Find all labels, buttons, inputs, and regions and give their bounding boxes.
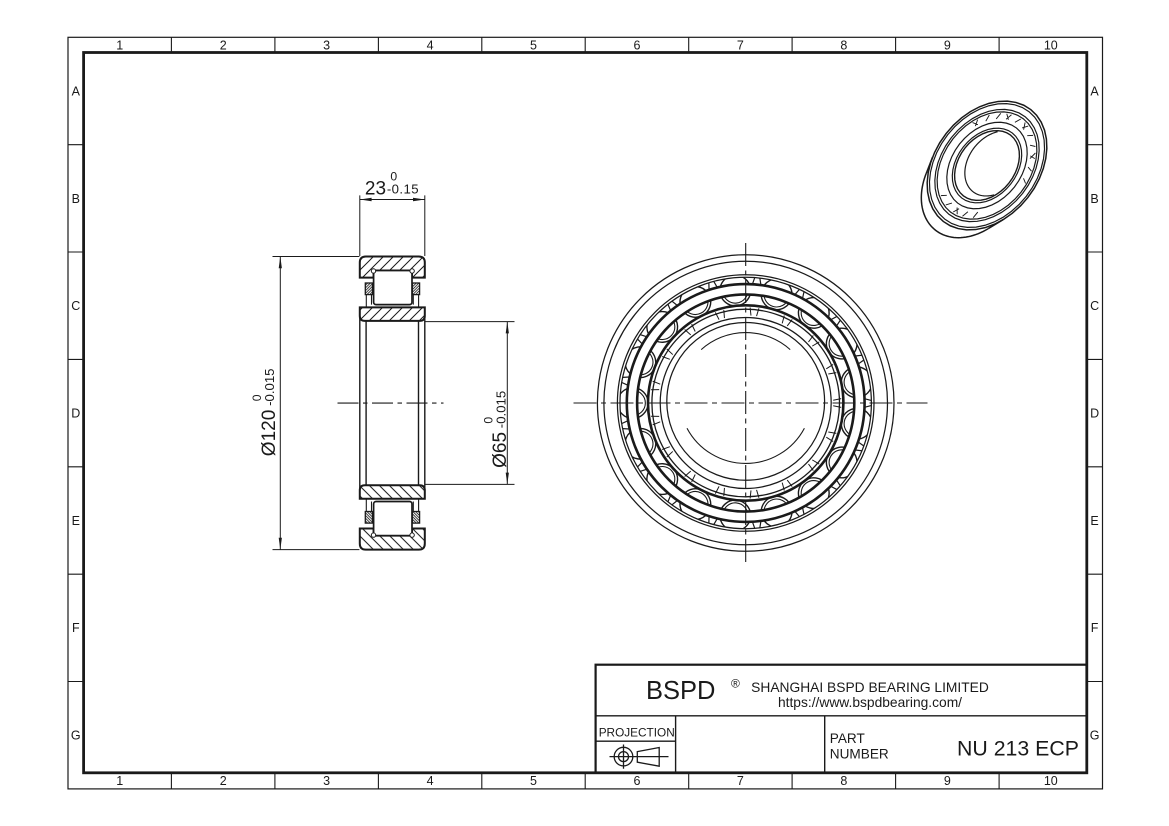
svg-text:NUMBER: NUMBER (830, 746, 889, 761)
svg-text:9: 9 (944, 38, 951, 52)
svg-text:SHANGHAI BSPD BEARING LIMITED: SHANGHAI BSPD BEARING LIMITED (751, 680, 989, 695)
svg-text:G: G (1090, 729, 1100, 743)
svg-text:NU 213 ECP: NU 213 ECP (957, 737, 1079, 761)
svg-text:Ø65: Ø65 (490, 432, 511, 468)
svg-text:Ø120: Ø120 (259, 410, 280, 456)
svg-text:5: 5 (530, 774, 537, 788)
svg-text:PROJECTION: PROJECTION (599, 726, 675, 740)
svg-text:2: 2 (220, 774, 227, 788)
svg-text:5: 5 (530, 38, 537, 52)
svg-text:-0.015: -0.015 (493, 391, 508, 428)
svg-text:C: C (71, 299, 80, 313)
svg-text:B: B (72, 192, 80, 206)
svg-text:F: F (1091, 621, 1099, 635)
svg-text:8: 8 (840, 774, 847, 788)
svg-text:1: 1 (116, 774, 123, 788)
svg-text:10: 10 (1044, 774, 1058, 788)
svg-text:4: 4 (427, 774, 434, 788)
svg-text:4: 4 (427, 38, 434, 52)
svg-text:G: G (71, 729, 81, 743)
svg-text:-0.015: -0.015 (262, 368, 277, 405)
svg-text:B: B (1090, 192, 1098, 206)
svg-text:PART: PART (830, 731, 865, 746)
svg-text:E: E (72, 514, 80, 528)
svg-text:A: A (72, 84, 81, 98)
svg-text:A: A (1090, 84, 1099, 98)
svg-text:7: 7 (737, 774, 744, 788)
svg-text:10: 10 (1044, 38, 1058, 52)
svg-text:2: 2 (220, 38, 227, 52)
svg-text:C: C (1090, 299, 1099, 313)
svg-text:E: E (1090, 514, 1098, 528)
svg-text:D: D (1090, 407, 1099, 421)
svg-text:3: 3 (323, 774, 330, 788)
svg-text:3: 3 (323, 38, 330, 52)
svg-text:https://www.bspdbearing.com/: https://www.bspdbearing.com/ (778, 695, 962, 710)
svg-text:-0.15: -0.15 (387, 181, 419, 196)
svg-text:6: 6 (634, 774, 641, 788)
svg-text:BSPD: BSPD (646, 677, 715, 705)
svg-text:6: 6 (634, 38, 641, 52)
svg-text:8: 8 (840, 38, 847, 52)
svg-text:D: D (71, 407, 80, 421)
svg-text:1: 1 (116, 38, 123, 52)
svg-text:®: ® (731, 677, 740, 691)
svg-text:F: F (72, 621, 80, 635)
svg-text:7: 7 (737, 38, 744, 52)
svg-text:23: 23 (365, 179, 386, 200)
svg-text:9: 9 (944, 774, 951, 788)
